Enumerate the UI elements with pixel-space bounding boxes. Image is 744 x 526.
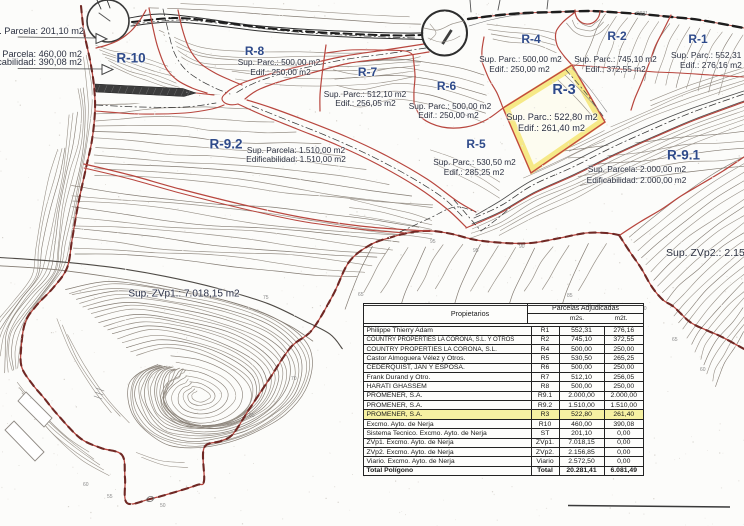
svg-text:85: 85 bbox=[567, 293, 573, 299]
svg-text:C031: C031 bbox=[636, 11, 648, 17]
svg-text:75: 75 bbox=[263, 295, 269, 301]
svg-text:65: 65 bbox=[358, 292, 364, 298]
svg-text:60: 60 bbox=[83, 482, 89, 488]
svg-text:90: 90 bbox=[519, 244, 525, 250]
svg-text:95: 95 bbox=[430, 239, 436, 245]
svg-text:55: 55 bbox=[107, 494, 113, 500]
svg-text:65: 65 bbox=[672, 337, 678, 343]
svg-text:50: 50 bbox=[160, 503, 166, 509]
svg-text:65: 65 bbox=[249, 413, 255, 419]
svg-text:60: 60 bbox=[700, 367, 706, 373]
svg-text:95: 95 bbox=[473, 248, 479, 254]
svg-text:70: 70 bbox=[291, 376, 297, 382]
